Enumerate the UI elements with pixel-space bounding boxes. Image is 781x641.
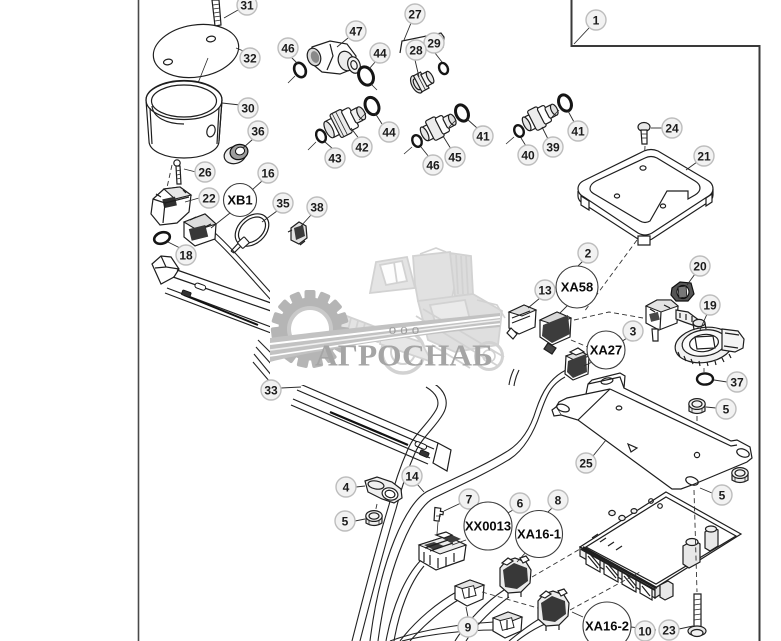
svg-text:27: 27 xyxy=(408,8,422,22)
svg-text:41: 41 xyxy=(571,125,585,139)
svg-text:30: 30 xyxy=(241,102,255,116)
svg-text:42: 42 xyxy=(355,141,369,155)
svg-text:35: 35 xyxy=(276,197,290,211)
svg-text:2: 2 xyxy=(585,247,592,261)
svg-text:33: 33 xyxy=(264,384,278,398)
svg-text:5: 5 xyxy=(723,403,730,417)
svg-text:9: 9 xyxy=(465,621,472,635)
svg-text:6: 6 xyxy=(517,497,524,511)
svg-text:46: 46 xyxy=(281,42,295,56)
svg-text:45: 45 xyxy=(448,151,462,165)
svg-text:46: 46 xyxy=(426,159,440,173)
svg-text:АГРОСНАБ: АГРОСНАБ xyxy=(315,338,493,373)
svg-text:32: 32 xyxy=(243,52,257,66)
svg-text:1: 1 xyxy=(593,14,600,28)
svg-text:36: 36 xyxy=(251,125,265,139)
svg-text:24: 24 xyxy=(665,122,679,136)
svg-text:ооо: ооо xyxy=(389,322,424,338)
svg-text:8: 8 xyxy=(555,494,562,508)
svg-text:XX0013: XX0013 xyxy=(465,519,511,534)
svg-text:28: 28 xyxy=(409,44,423,58)
svg-text:16: 16 xyxy=(261,167,275,181)
svg-text:4: 4 xyxy=(343,481,350,495)
svg-text:38: 38 xyxy=(310,201,324,215)
svg-text:37: 37 xyxy=(730,376,744,390)
svg-text:40: 40 xyxy=(521,149,535,163)
svg-text:5: 5 xyxy=(342,515,349,529)
svg-text:43: 43 xyxy=(328,152,342,166)
svg-text:3: 3 xyxy=(630,325,637,339)
svg-text:XA58: XA58 xyxy=(561,280,594,295)
svg-text:44: 44 xyxy=(373,47,387,61)
svg-text:XA27: XA27 xyxy=(590,343,623,358)
svg-text:41: 41 xyxy=(476,130,490,144)
svg-text:20: 20 xyxy=(693,260,707,274)
svg-text:23: 23 xyxy=(662,624,676,638)
svg-text:47: 47 xyxy=(349,25,363,39)
svg-text:XA16-1: XA16-1 xyxy=(517,527,561,542)
svg-text:13: 13 xyxy=(538,284,552,298)
svg-text:10: 10 xyxy=(638,625,652,639)
svg-text:7: 7 xyxy=(466,493,473,507)
svg-text:19: 19 xyxy=(703,299,717,313)
svg-text:21: 21 xyxy=(697,150,711,164)
svg-text:31: 31 xyxy=(240,0,254,13)
svg-text:XB1: XB1 xyxy=(227,193,252,208)
svg-text:5: 5 xyxy=(719,489,726,503)
svg-text:25: 25 xyxy=(579,457,593,471)
svg-text:18: 18 xyxy=(179,249,193,263)
svg-text:29: 29 xyxy=(427,37,441,51)
svg-text:22: 22 xyxy=(202,192,216,206)
svg-text:44: 44 xyxy=(382,126,396,140)
svg-text:XA16-2: XA16-2 xyxy=(585,619,629,634)
svg-text:26: 26 xyxy=(198,166,212,180)
svg-text:14: 14 xyxy=(405,470,419,484)
svg-text:39: 39 xyxy=(546,141,560,155)
